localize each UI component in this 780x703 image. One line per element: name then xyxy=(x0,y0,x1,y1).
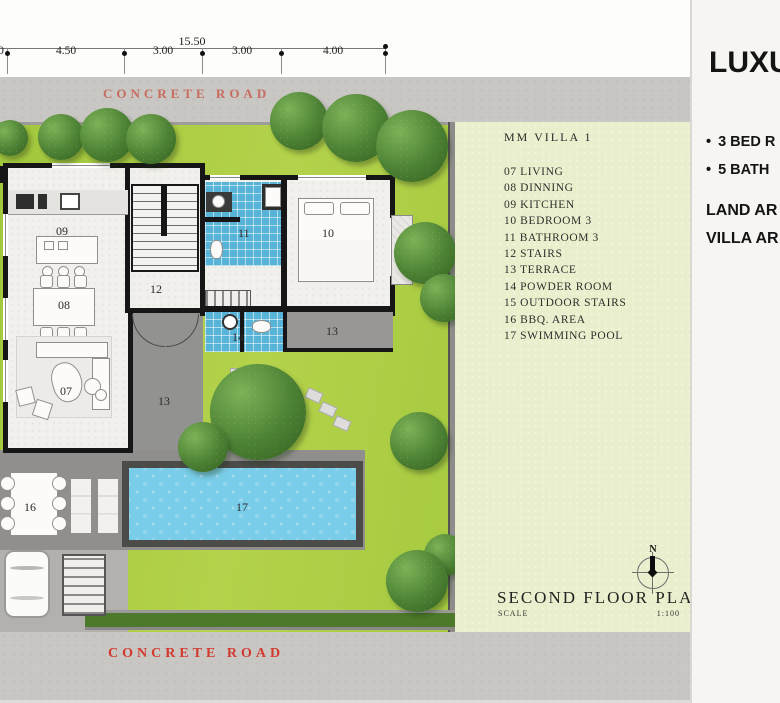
pillow xyxy=(304,202,334,215)
room-label-bathroom: 11 xyxy=(238,226,250,241)
dimension-segment-label: 0 xyxy=(0,45,6,57)
scale-label: SCALE xyxy=(498,609,528,618)
car-rear-window xyxy=(10,596,44,600)
chair xyxy=(52,496,67,511)
pillow xyxy=(340,202,370,215)
tree xyxy=(376,110,448,182)
basin xyxy=(212,195,225,208)
room-legend: 07 LIVING 08 DINNING 09 KITCHEN 10 BEDRO… xyxy=(504,164,626,344)
chair xyxy=(0,496,15,511)
dimension-dot xyxy=(279,51,284,56)
legend-item: 07 LIVING xyxy=(504,164,626,180)
legend-item: 10 BEDROOM 3 xyxy=(504,213,626,229)
villa-title: MM VILLA 1 xyxy=(504,130,592,145)
outdoor-stairs-lower xyxy=(62,554,106,616)
chair xyxy=(0,516,15,531)
chair xyxy=(57,275,70,288)
room-label-terrace-upper: 13 xyxy=(326,324,338,339)
washer xyxy=(222,314,238,330)
floor-plan-slide: 15.50 0 4.50 3.00 3.00 4.00 CONCRETE ROA… xyxy=(0,0,780,703)
tree xyxy=(390,412,448,470)
room-label-dinning: 08 xyxy=(58,298,70,313)
island-sink xyxy=(44,241,54,250)
marketing-feature: • 5 BATH xyxy=(706,162,769,178)
scale-value: 1:100 xyxy=(657,609,680,618)
car xyxy=(4,550,50,618)
compass-diamond-icon xyxy=(648,568,658,578)
feature-text: 3 BED R xyxy=(718,134,775,150)
room-label-living: 07 xyxy=(60,384,72,399)
chair xyxy=(74,275,87,288)
island-hob xyxy=(58,241,68,250)
bullet-icon: • xyxy=(706,162,711,178)
side-table xyxy=(95,389,107,401)
compass-dial-icon xyxy=(637,557,669,589)
room-label-bbq: 16 xyxy=(24,500,36,515)
bullet-icon: • xyxy=(706,134,711,150)
chair xyxy=(52,516,67,531)
wc-partition xyxy=(205,217,240,222)
bottom-hedge xyxy=(85,610,455,630)
legend-item: 08 DINNING xyxy=(504,180,626,196)
window xyxy=(298,175,366,180)
shower-tray xyxy=(265,187,281,207)
window xyxy=(52,163,110,168)
room-label-kitchen: 09 xyxy=(56,224,68,239)
tree xyxy=(38,114,84,160)
dimension-segment-label: 4.50 xyxy=(46,45,86,57)
marketing-feature: • 3 BED R xyxy=(706,134,775,150)
tree xyxy=(386,550,448,612)
dimension-segment-label: 3.00 xyxy=(222,45,262,57)
dimension-dot xyxy=(383,51,388,56)
car-windshield xyxy=(10,566,44,570)
window xyxy=(3,298,8,340)
window xyxy=(3,360,8,402)
chair xyxy=(52,476,67,491)
tree xyxy=(0,120,28,156)
concrete-road-bottom: CONCRETE ROAD xyxy=(0,632,690,700)
interior-wall xyxy=(281,178,287,316)
bed-sheet xyxy=(300,240,372,280)
tree xyxy=(178,422,228,472)
feature-text: 5 BATH xyxy=(718,162,769,178)
toilet xyxy=(210,240,223,259)
stepping-stone xyxy=(304,387,323,404)
legend-item: 09 KITCHEN xyxy=(504,197,626,213)
villa-area-label: VILLA AR xyxy=(706,230,779,248)
stair-spine-wall xyxy=(161,184,167,236)
room-label-powder: 14 xyxy=(232,330,244,345)
legend-item: 17 SWIMMING POOL xyxy=(504,328,626,344)
sofa xyxy=(36,342,108,358)
lounger xyxy=(97,478,119,534)
north-label: N xyxy=(631,544,675,555)
legend-item: 12 STAIRS xyxy=(504,246,626,262)
room-label-stairs: 12 xyxy=(150,282,162,297)
lounger xyxy=(70,478,92,534)
dimension-dot xyxy=(383,44,388,49)
concrete-road-top-label: CONCRETE ROAD xyxy=(103,86,270,102)
legend-item: 14 POWDER ROOM xyxy=(504,279,626,295)
window xyxy=(3,214,8,256)
stepping-stone xyxy=(332,415,351,432)
site-plan: 09 08 07 12 11 10 14 13 13 16 17 xyxy=(0,122,455,632)
marketing-panel: LUXU • 3 BED R • 5 BATH LAND AR VILLA AR xyxy=(690,0,780,703)
room-label-terrace-side: 13 xyxy=(158,394,170,409)
stepping-stone xyxy=(318,401,337,418)
land-area-label: LAND AR xyxy=(706,202,777,220)
dimension-dot xyxy=(200,51,205,56)
marketing-heading: LUXU xyxy=(709,46,780,80)
powder-room-floor xyxy=(205,312,283,352)
window xyxy=(210,175,240,180)
room-label-bedroom: 10 xyxy=(322,226,334,241)
appliance xyxy=(38,194,47,209)
dimension-segment-label: 4.00 xyxy=(313,45,353,57)
chair xyxy=(40,275,53,288)
concrete-road-bottom-label: CONCRETE ROAD xyxy=(108,646,284,662)
legend-item: 15 OUTDOOR STAIRS xyxy=(504,295,626,311)
legend-item: 11 BATHROOM 3 xyxy=(504,230,626,246)
toilet xyxy=(252,320,271,333)
stove xyxy=(16,194,34,209)
scale-row: SCALE 1:100 xyxy=(498,609,680,618)
terrace-edge xyxy=(287,348,393,352)
plan-title: SECOND FLOOR PLAN xyxy=(497,588,687,608)
tree xyxy=(270,92,328,150)
dimension-dot xyxy=(122,51,127,56)
legend-panel: MM VILLA 1 07 LIVING 08 DINNING 09 KITCH… xyxy=(455,122,690,632)
legend-item: 13 TERRACE xyxy=(504,262,626,278)
tree xyxy=(126,114,176,164)
terrace-upper-floor xyxy=(287,312,393,352)
room-label-pool: 17 xyxy=(236,500,248,515)
legend-item: 16 BBQ. AREA xyxy=(504,312,626,328)
kitchen-sink xyxy=(60,193,80,210)
chair xyxy=(0,476,15,491)
dimension-segment-label: 3.00 xyxy=(143,45,183,57)
